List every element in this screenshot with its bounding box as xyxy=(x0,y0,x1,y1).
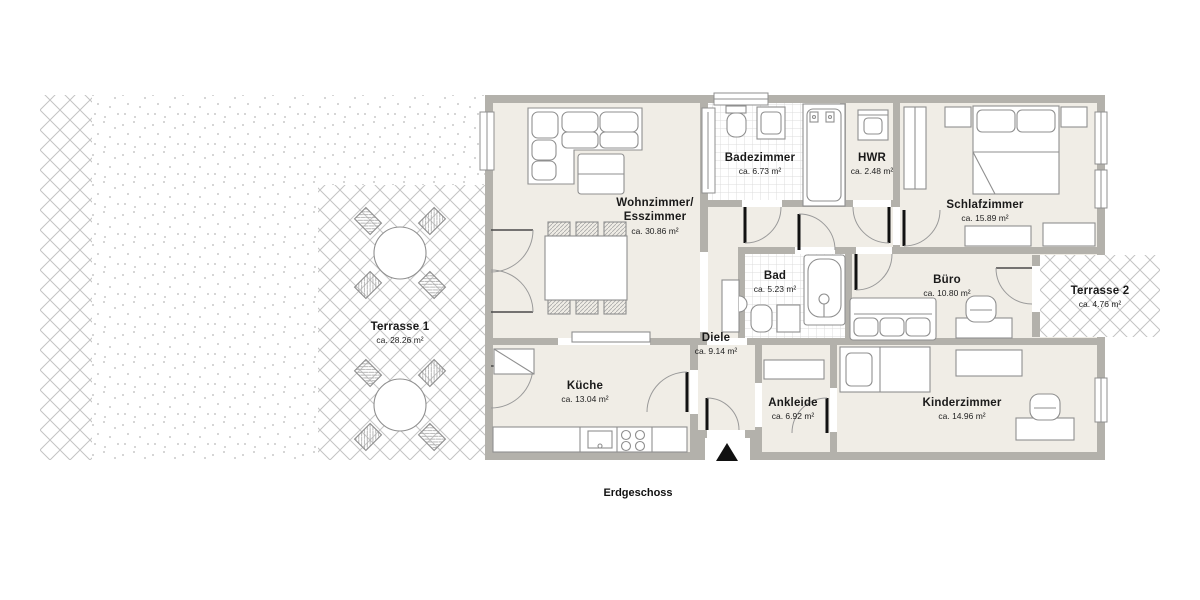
window-kids-right xyxy=(1095,378,1107,422)
office-furniture xyxy=(850,296,1012,340)
floor-level-label: Erdgeschoss xyxy=(603,487,672,499)
closet-shelf xyxy=(764,360,824,379)
window-bedroom-right-2 xyxy=(1095,170,1107,208)
floorplan: Terrasse 1ca. 28.26 m² Wohnzimmer/ Esszi… xyxy=(0,0,1200,600)
terrace-2-area xyxy=(1040,255,1160,337)
window-bath-top xyxy=(714,93,768,105)
window-bedroom-right-1 xyxy=(1095,112,1107,164)
radiator xyxy=(702,108,715,193)
washing-machine-icon xyxy=(858,110,888,140)
window-living-left xyxy=(480,112,494,170)
floorplan-canvas xyxy=(0,0,1200,600)
